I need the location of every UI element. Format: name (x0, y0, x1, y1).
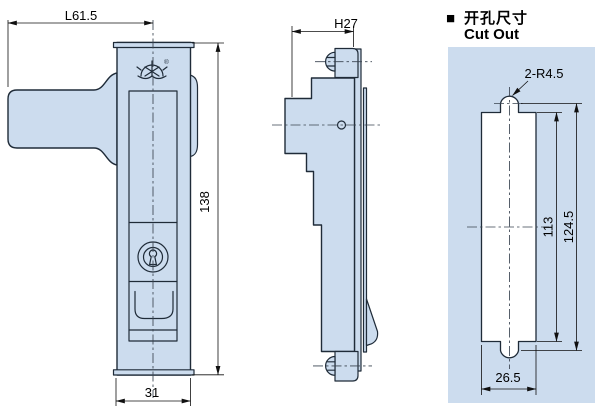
svg-text:26.5: 26.5 (495, 370, 520, 385)
side-view: H27 (272, 16, 381, 381)
cutout-title-cn: 开孔尺寸 (464, 9, 528, 27)
side-body (285, 78, 355, 352)
dim-body-width: 31 (116, 378, 191, 406)
registered-mark: ® (164, 58, 169, 66)
section-marker: ■ (446, 10, 456, 27)
svg-text:138: 138 (197, 191, 212, 213)
lock-body (117, 43, 191, 376)
cutout-view: 2-R4.5 113 124.5 26.5 (448, 47, 595, 403)
top-flange (114, 43, 195, 48)
bottom-flange (114, 370, 195, 375)
svg-text:L61.5: L61.5 (65, 8, 98, 23)
svg-text:H27: H27 (334, 16, 358, 31)
spring-clip (367, 299, 378, 346)
face-plate (355, 49, 362, 371)
top-latch (335, 49, 358, 78)
svg-text:31: 31 (145, 385, 159, 400)
svg-text:124.5: 124.5 (561, 211, 576, 244)
svg-text:113: 113 (541, 217, 556, 238)
svg-text:2-R4.5: 2-R4.5 (524, 66, 563, 81)
technical-drawing-page: ® L61.5 138 31 (0, 0, 600, 416)
panel-lock-drawing: ® L61.5 138 31 (0, 0, 600, 416)
front-view: ® L61.5 138 31 (8, 8, 224, 406)
cutout-title: ■ 开孔尺寸 Cut Out (446, 9, 528, 43)
cutout-title-en: Cut Out (464, 26, 519, 43)
handle (8, 73, 117, 165)
